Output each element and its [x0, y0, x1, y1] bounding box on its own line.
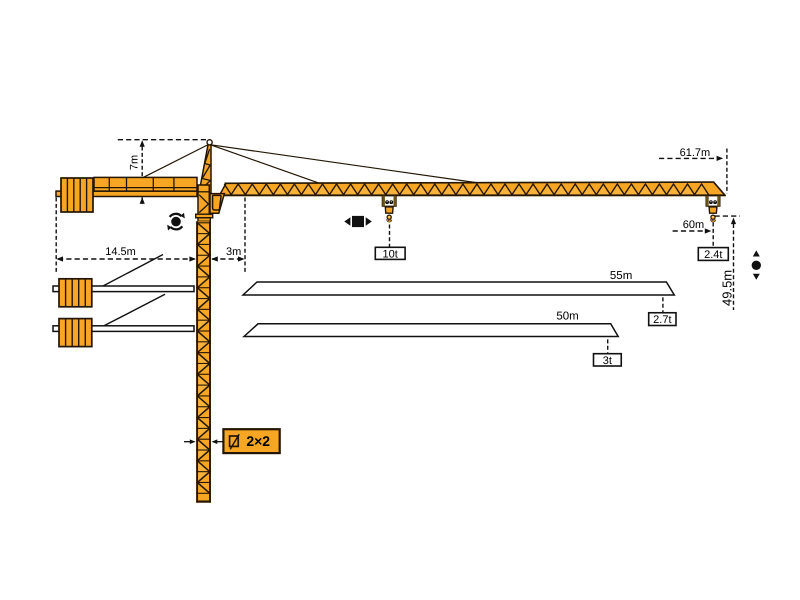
svg-text:2.7t: 2.7t: [653, 314, 671, 326]
svg-text:49.5m: 49.5m: [720, 270, 735, 306]
svg-text:2×2: 2×2: [246, 433, 270, 449]
svg-text:2.4t: 2.4t: [704, 249, 722, 261]
svg-text:14.5m: 14.5m: [105, 246, 136, 258]
svg-text:60m: 60m: [683, 219, 704, 231]
svg-text:10t: 10t: [383, 248, 398, 260]
svg-text:61.7m: 61.7m: [680, 147, 711, 159]
svg-text:3m: 3m: [226, 246, 241, 258]
svg-text:55m: 55m: [610, 270, 632, 282]
svg-text:3t: 3t: [603, 355, 612, 367]
svg-text:50m: 50m: [556, 311, 578, 323]
svg-text:7m: 7m: [129, 155, 141, 170]
